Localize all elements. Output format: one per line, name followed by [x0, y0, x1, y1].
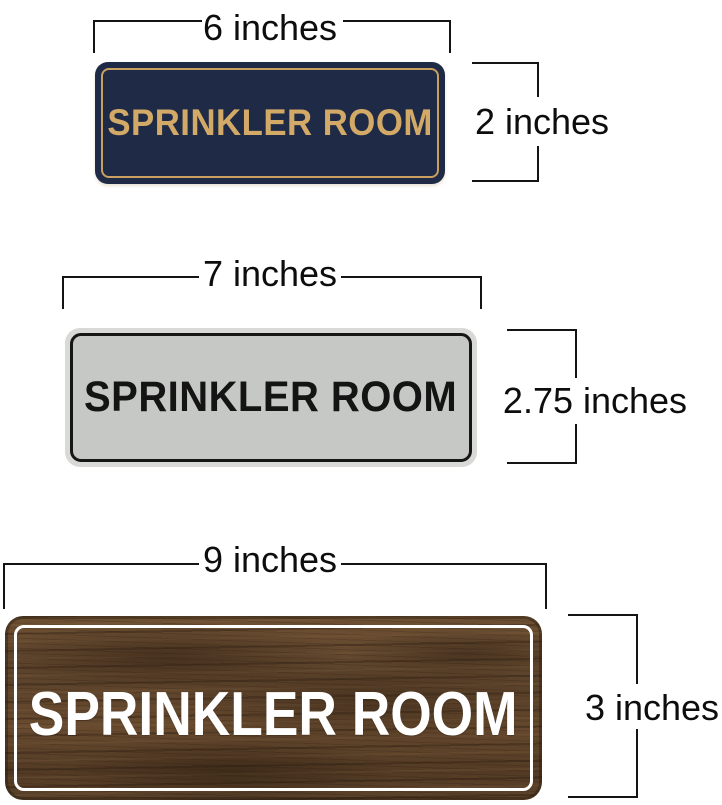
sign-text-wrap: SPRINKLER ROOM: [65, 328, 477, 467]
dimension-line: [93, 20, 202, 22]
dimension-tick: [537, 146, 539, 182]
dimension-line: [507, 462, 577, 464]
dimension-tick: [480, 276, 482, 309]
sign-text: SPRINKLER ROOM: [107, 102, 432, 144]
height-dimension-label-3in: 3 inches: [572, 686, 722, 730]
sign-text-wrap: SPRINKLER ROOM: [95, 62, 445, 184]
sign-text-wrap: SPRINKLER ROOM: [5, 616, 542, 800]
width-dimension-label-9in: 9 inches: [170, 538, 370, 582]
sign-size-diagram: 6 inches SPRINKLER ROOM 2 inches 7 inche…: [0, 0, 722, 805]
dimension-line: [568, 796, 638, 798]
dimension-tick: [575, 329, 577, 378]
sign-plate-silver: SPRINKLER ROOM: [65, 328, 477, 467]
sign-text: SPRINKLER ROOM: [84, 373, 457, 422]
width-dimension-label-6in: 6 inches: [170, 6, 370, 50]
sign-plate-navy: SPRINKLER ROOM: [95, 62, 445, 184]
width-dimension-label-7in: 7 inches: [170, 252, 370, 296]
dimension-line: [341, 563, 547, 565]
dimension-line: [341, 276, 482, 278]
sign-plate-walnut: SPRINKLER ROOM: [5, 616, 542, 800]
dimension-tick: [537, 62, 539, 97]
dimension-line: [343, 20, 451, 22]
dimension-line: [568, 614, 638, 616]
dimension-line: [472, 180, 539, 182]
dimension-line: [507, 329, 577, 331]
height-dimension-label-2in: 2 inches: [447, 100, 637, 144]
dimension-tick: [3, 563, 5, 609]
dimension-tick: [93, 20, 95, 53]
dimension-tick: [636, 729, 638, 798]
sign-text: SPRINKLER ROOM: [29, 679, 518, 750]
dimension-tick: [575, 424, 577, 464]
dimension-tick: [449, 20, 451, 53]
dimension-tick: [545, 563, 547, 609]
dimension-line: [472, 62, 539, 64]
dimension-tick: [62, 276, 64, 309]
dimension-line: [62, 276, 199, 278]
dimension-tick: [636, 614, 638, 684]
dimension-line: [3, 563, 199, 565]
height-dimension-label-2-75in: 2.75 inches: [495, 379, 695, 423]
